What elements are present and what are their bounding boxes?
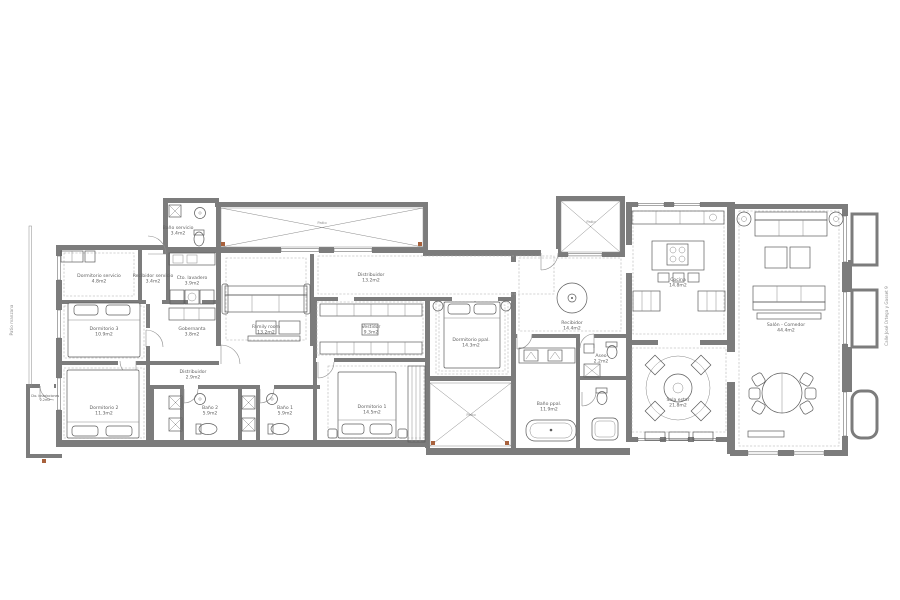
room-label-bano-1: Baño 15.9m2 [277, 405, 293, 416]
room-label-bano-ppal: Baño ppal.11.9m2 [537, 401, 562, 412]
patio-2-label: Patio [586, 219, 596, 224]
furniture-bedroom-2 [67, 370, 139, 438]
room-label-distribuidor-2: Distribuidor2.9m2 [180, 369, 207, 380]
room-label-distribuidor-13: Distribuidor13.2m2 [358, 272, 385, 283]
room-label-cocina: Cocina14.8m2 [669, 277, 687, 288]
room-label-sala-estar: Sala estar21.8m2 [666, 397, 689, 408]
patio-2: Patio [561, 201, 620, 252]
furniture-bedroom-1 [328, 366, 425, 442]
furniture-master-bedroom [433, 301, 511, 368]
floor-plan-svg: Patio Patio Patio [0, 0, 900, 600]
left-edge-label: Patio manzana [9, 304, 14, 335]
room-label-cto-lavadero: Cto. lavadero3.9m2 [177, 275, 208, 286]
patio-1: Patio [221, 208, 423, 247]
room-label-cto-instalaciones: Cto. instalaciones2.2m2 [31, 394, 60, 402]
room-label-gobernanta: Gobernanta3.8m2 [178, 326, 205, 337]
room-label-vestidor: Vestidor9.3m2 [362, 324, 381, 335]
room-label-salon-comedor: Salón - Comedor44.4m2 [767, 321, 805, 333]
room-label-recibidor: Recibidor14.4m2 [561, 320, 583, 331]
room-label-bano-2: Baño 25.9m2 [202, 405, 218, 416]
room-label-dormitorio-servicio: Dormitorio servicio4.8m2 [77, 273, 121, 284]
walls-layer [26, 196, 852, 458]
right-edge-label: Calle José Ortega y Gasset 9 [884, 286, 889, 346]
patio-1-label: Patio [317, 220, 327, 225]
furniture-recibidor [557, 283, 587, 313]
room-label-aseo: Aseo2.2m2 [594, 353, 609, 364]
balcony-bays [852, 214, 877, 438]
patio-3-label: Patio [466, 412, 476, 417]
furniture-kitchen [632, 211, 725, 311]
patio-3: Patio [430, 383, 511, 446]
survey-marker [42, 459, 46, 463]
furniture-bathrooms [169, 394, 289, 435]
